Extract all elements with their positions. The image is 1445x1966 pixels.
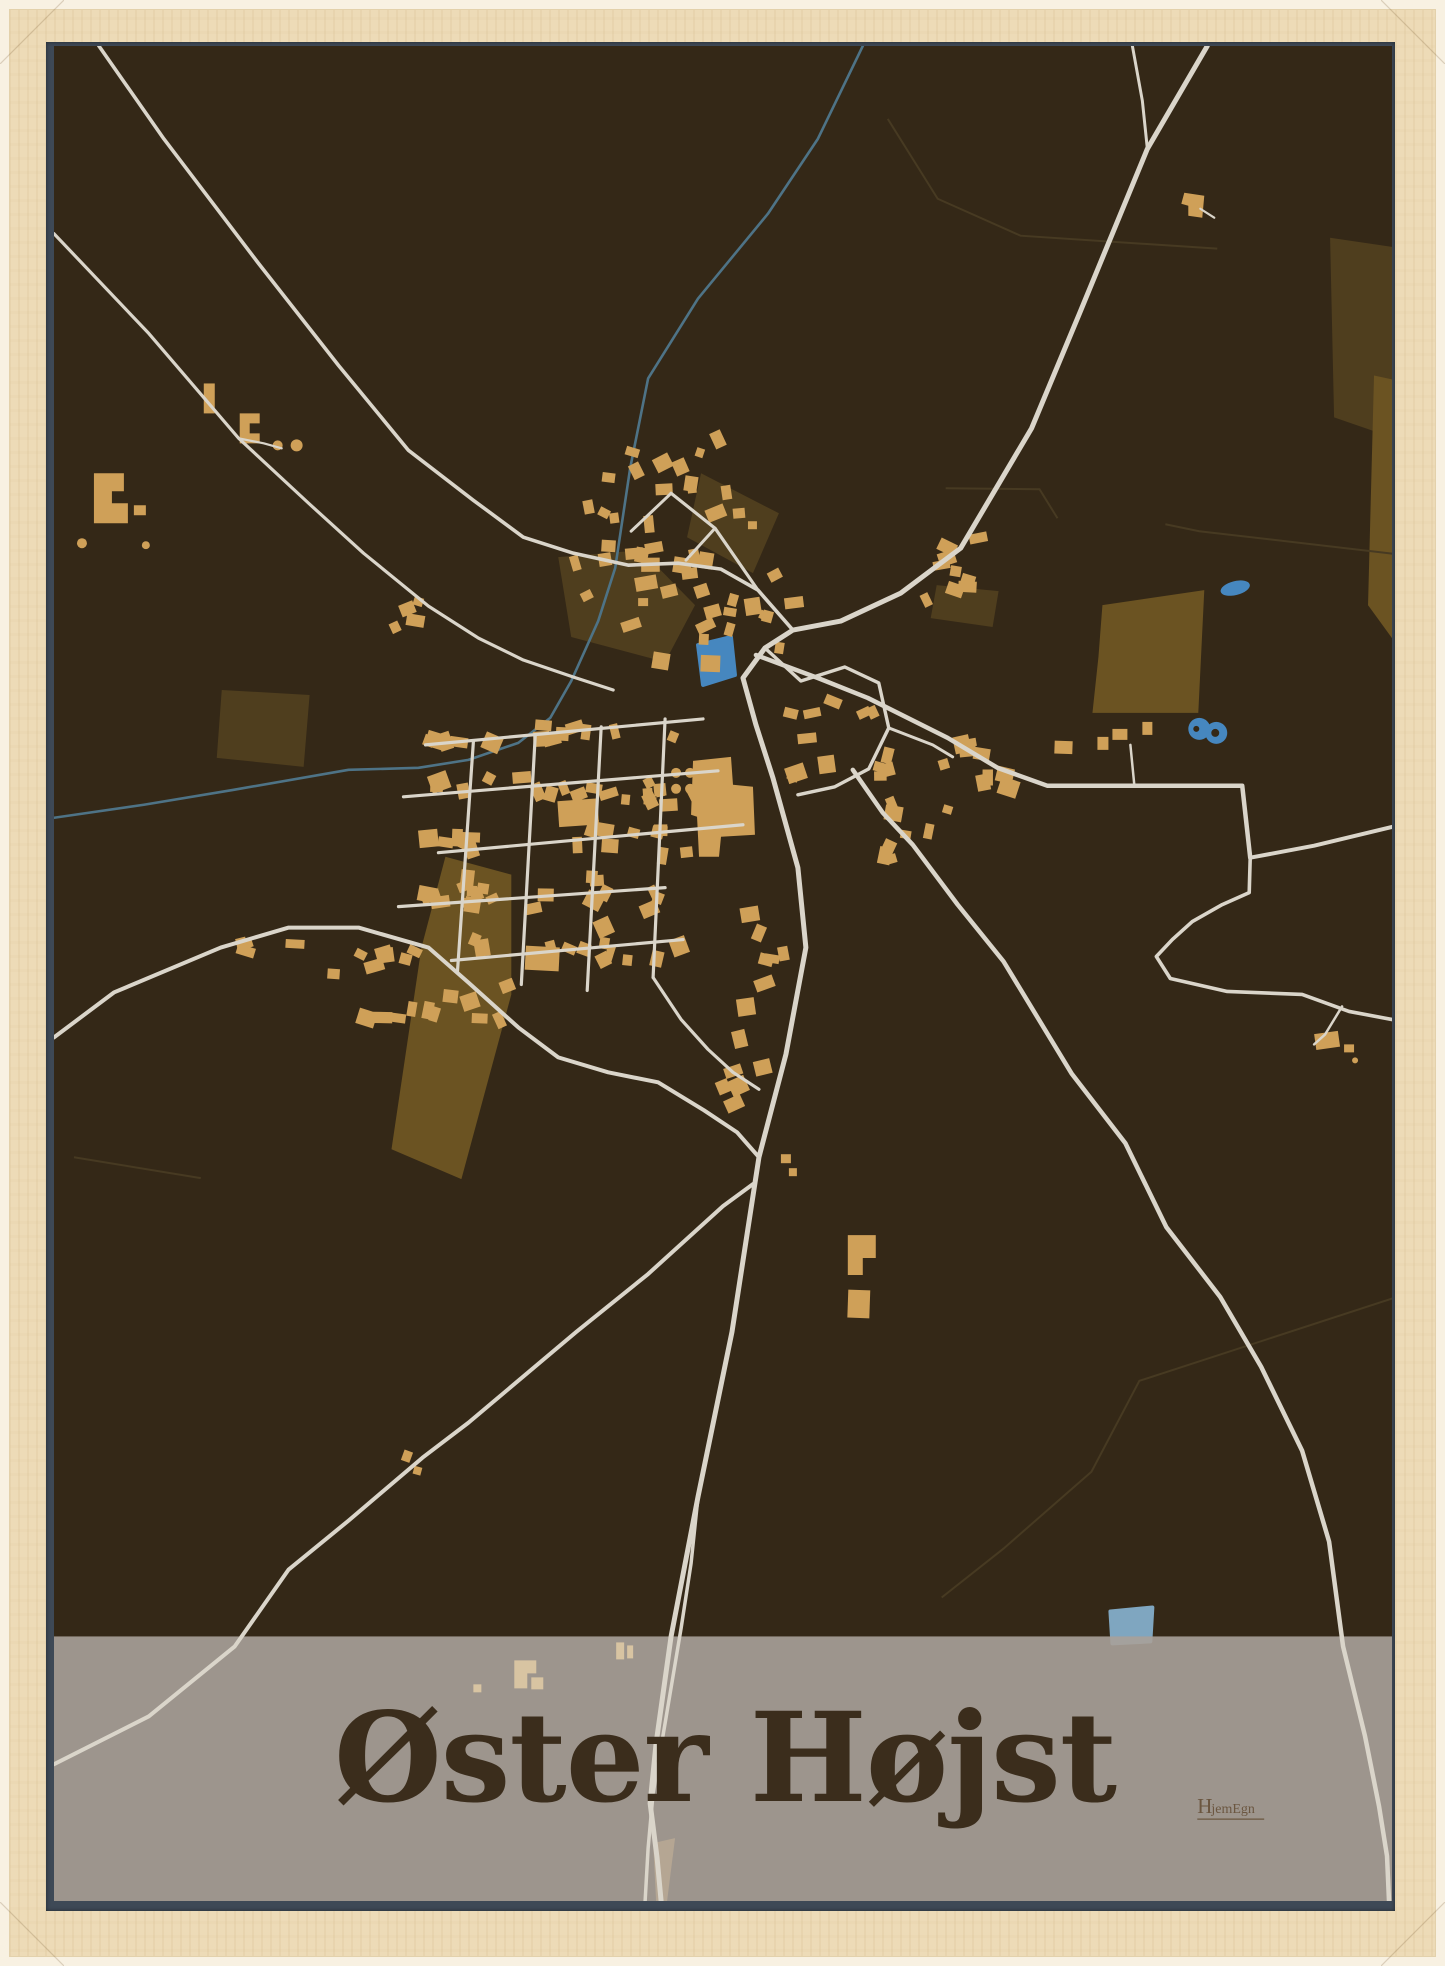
frame-miter-bottom-left (0, 1902, 64, 1966)
poster-shadow-gap: Øster HøjstHjemEgn (46, 42, 1395, 1911)
wooden-frame: Øster HøjstHjemEgn (0, 0, 1445, 1966)
town-map: Øster HøjstHjemEgn (54, 46, 1392, 1901)
framed-map-poster: Øster HøjstHjemEgn (0, 0, 1445, 1966)
map-background (54, 46, 1392, 1901)
map-poster: Øster HøjstHjemEgn (54, 46, 1392, 1901)
town-title: Øster Højst (334, 1686, 1117, 1831)
frame-miter-bottom-right (1381, 1902, 1445, 1966)
